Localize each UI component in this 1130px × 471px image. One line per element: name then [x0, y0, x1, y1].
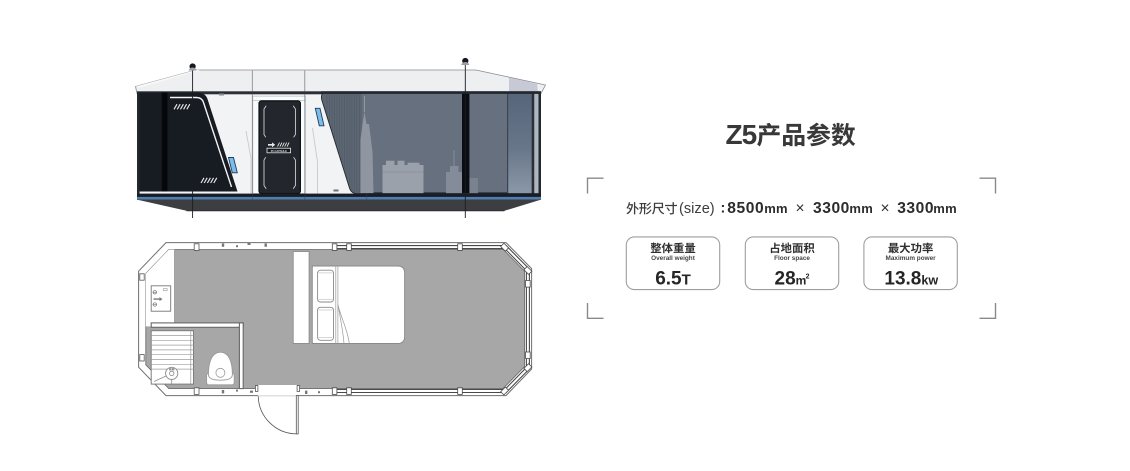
- svg-text:▩▩: ▩▩: [169, 367, 175, 371]
- svg-text:8500mm×3300mm×3300mm: 8500mm×3300mm×3300mm: [727, 200, 957, 217]
- svg-text:Overall weight: Overall weight: [651, 255, 696, 262]
- svg-text::: :: [721, 201, 726, 217]
- svg-text:Z5: Z5: [726, 119, 757, 150]
- svg-text:Maximum power: Maximum power: [886, 255, 937, 262]
- svg-text:Z5 CAPSULE: Z5 CAPSULE: [271, 149, 287, 153]
- svg-text:(size): (size): [679, 201, 715, 217]
- svg-text:Floor space: Floor space: [774, 255, 810, 262]
- svg-text:6.5T: 6.5T: [655, 268, 691, 289]
